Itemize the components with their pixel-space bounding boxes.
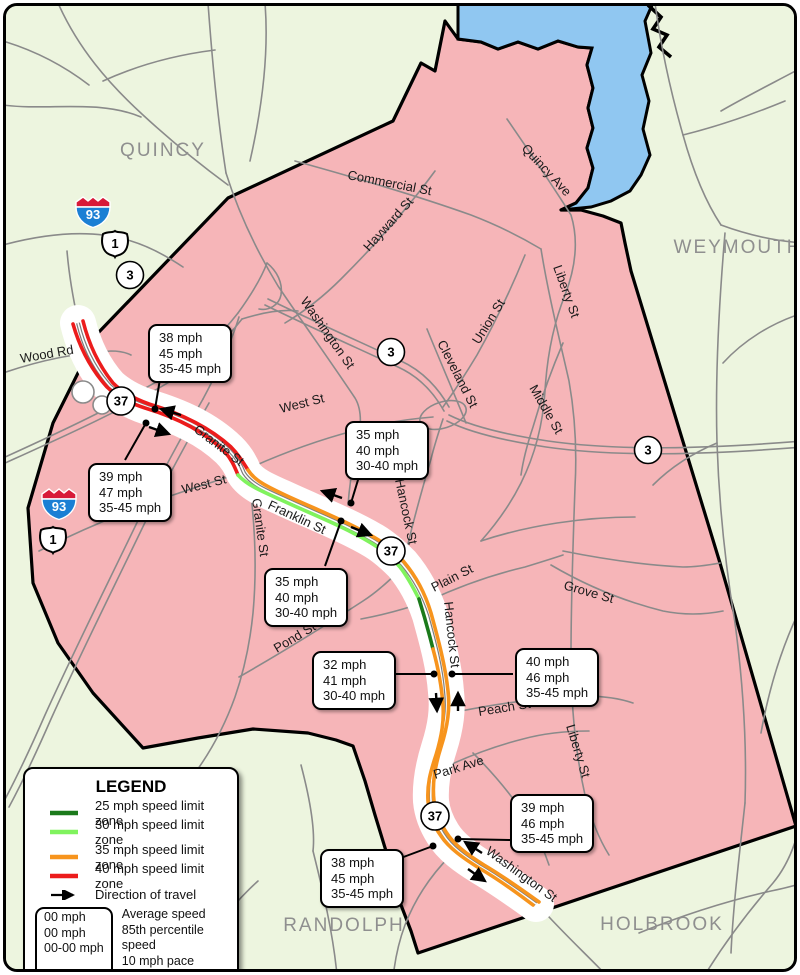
us1-number: 1 xyxy=(111,236,118,251)
direction-arrow xyxy=(436,693,437,711)
route-3-number: 3 xyxy=(387,345,394,360)
i93-number: 93 xyxy=(52,499,66,514)
zone-35-swatch xyxy=(33,854,95,860)
speed-callout: 38 mph 45 mph 35-45 mph xyxy=(148,324,232,383)
route-3-number: 3 xyxy=(644,443,651,458)
speed-callout: 39 mph 47 mph 35-45 mph xyxy=(88,463,172,522)
pace-speed: 30-40 mph xyxy=(356,458,418,474)
map-frame: Wood Rd Commercial St Hayward St Quincy … xyxy=(3,3,797,972)
route-3-shield: 3 xyxy=(635,437,662,464)
p85-speed: 47 mph xyxy=(99,485,161,501)
p85-speed: 46 mph xyxy=(526,670,588,686)
pace-speed-placeholder: 00-00 mph xyxy=(44,941,104,957)
avg-speed: 32 mph xyxy=(323,657,385,673)
speed-callout: 39 mph 46 mph 35-45 mph xyxy=(510,794,594,853)
pace-speed: 35-45 mph xyxy=(526,685,588,701)
p85-speed: 40 mph xyxy=(275,590,337,606)
avg-speed: 38 mph xyxy=(331,855,393,871)
pace-speed: 35-45 mph xyxy=(521,831,583,847)
route-37-shield: 37 xyxy=(421,802,449,830)
route-3-shield: 3 xyxy=(378,339,405,366)
route-37-number: 37 xyxy=(428,809,442,824)
legend-item-label: Direction of travel xyxy=(95,887,196,902)
avg-speed: 40 mph xyxy=(526,654,588,670)
town-label-weymouth: WEYMOUTH xyxy=(674,237,797,258)
p85-speed: 45 mph xyxy=(159,346,221,362)
legend-item-label: 40 mph speed limit zone xyxy=(95,861,229,891)
p85-speed: 41 mph xyxy=(323,673,385,689)
i93-number: 93 xyxy=(86,207,100,222)
speed-callout: 35 mph 40 mph 30-40 mph xyxy=(264,568,348,627)
p85-speed-label: 85th percentile speed xyxy=(122,923,229,954)
legend-speed-box-row: 00 mph 00 mph 00-00 mph Average speed 85… xyxy=(33,907,229,972)
speed-callout: 40 mph 46 mph 35-45 mph xyxy=(515,648,599,707)
legend: LEGEND 25 mph speed limit zone 30 mph sp… xyxy=(23,767,239,972)
p85-speed: 40 mph xyxy=(356,443,418,459)
direction-arrow-icon xyxy=(33,890,95,900)
zone-30-swatch xyxy=(33,829,95,835)
avg-speed: 35 mph xyxy=(356,427,418,443)
speed-study-map: Wood Rd Commercial St Hayward St Quincy … xyxy=(0,0,800,975)
pace-speed-label: 10 mph pace speed xyxy=(122,954,229,973)
speed-callout: 32 mph 41 mph 30-40 mph xyxy=(312,651,396,710)
town-label-holbrook: HOLBROOK xyxy=(600,914,724,935)
avg-speed: 38 mph xyxy=(159,330,221,346)
zone-25-swatch xyxy=(33,810,95,816)
pace-speed: 35-45 mph xyxy=(99,500,161,516)
p85-speed: 46 mph xyxy=(521,816,583,832)
pace-speed: 30-40 mph xyxy=(275,605,337,621)
us1-number: 1 xyxy=(49,532,56,547)
legend-speed-box: 00 mph 00 mph 00-00 mph xyxy=(35,907,113,972)
avg-speed: 35 mph xyxy=(275,574,337,590)
avg-speed: 39 mph xyxy=(99,469,161,485)
town-label-quincy: QUINCY xyxy=(120,140,206,161)
legend-item-30mph: 30 mph speed limit zone xyxy=(33,822,229,841)
speed-callout: 38 mph 45 mph 35-45 mph xyxy=(320,849,404,908)
us1-shield: 1 xyxy=(102,231,128,257)
us1-shield: 1 xyxy=(40,527,66,553)
pace-speed: 30-40 mph xyxy=(323,688,385,704)
avg-speed: 39 mph xyxy=(521,800,583,816)
speed-callout: 35 mph 40 mph 30-40 mph xyxy=(345,421,429,480)
town-label-randolph: RANDOLPH xyxy=(283,915,405,936)
route-3-shield: 3 xyxy=(117,262,144,289)
route-37-number: 37 xyxy=(114,394,128,409)
legend-speed-labels: Average speed 85th percentile speed 10 m… xyxy=(122,907,229,972)
route-37-number: 37 xyxy=(384,544,398,559)
route-37-shield: 37 xyxy=(377,537,405,565)
p85-speed: 45 mph xyxy=(331,871,393,887)
legend-item-40mph: 40 mph speed limit zone xyxy=(33,866,229,885)
p85-speed-placeholder: 00 mph xyxy=(44,926,104,942)
avg-speed-placeholder: 00 mph xyxy=(44,910,104,926)
zone-40-swatch xyxy=(33,873,95,879)
pace-speed: 35-45 mph xyxy=(159,361,221,377)
legend-title: LEGEND xyxy=(33,777,229,797)
route-3-number: 3 xyxy=(126,268,133,283)
route-37-shield: 37 xyxy=(107,387,135,415)
pace-speed: 35-45 mph xyxy=(331,886,393,902)
avg-speed-label: Average speed xyxy=(122,907,229,923)
